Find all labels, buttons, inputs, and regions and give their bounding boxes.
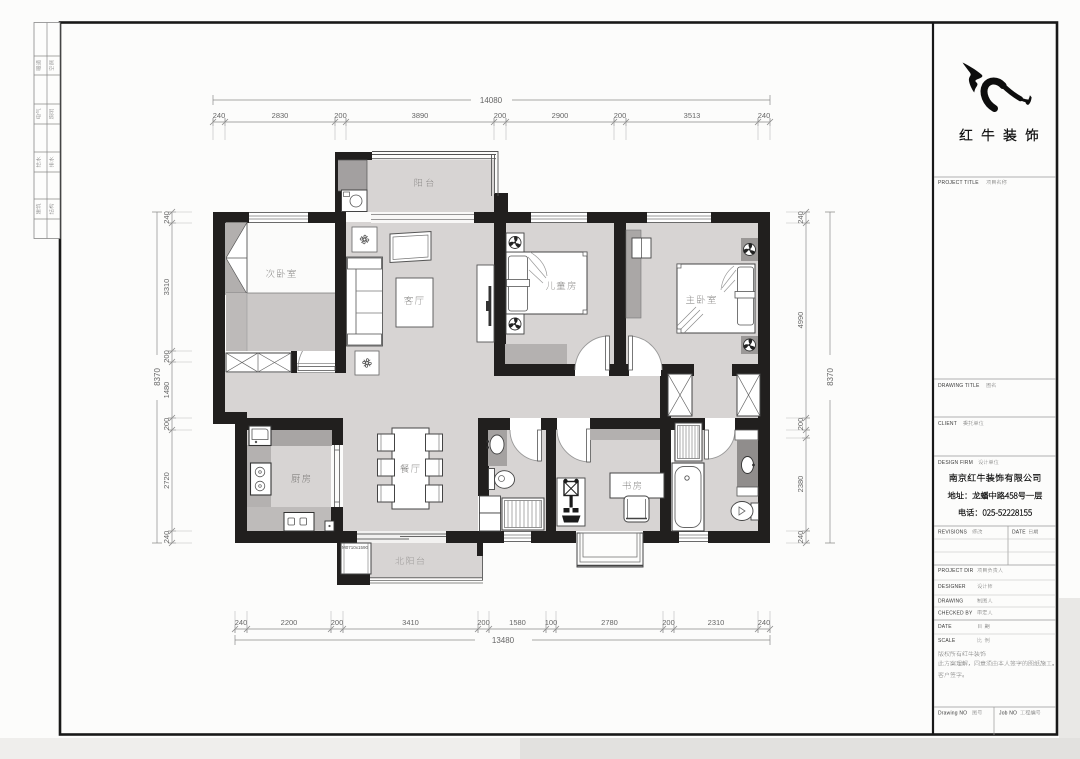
svg-text:SCALE: SCALE — [938, 638, 956, 644]
svg-text:200: 200 — [796, 418, 805, 431]
svg-text:2830: 2830 — [272, 111, 289, 120]
svg-text:Job NO: Job NO — [999, 711, 1017, 717]
svg-text:240: 240 — [796, 211, 805, 224]
svg-text:Drawing NO: Drawing NO — [938, 711, 967, 717]
svg-text:2200: 2200 — [281, 618, 298, 627]
svg-text:200: 200 — [614, 111, 627, 120]
svg-text:3310: 3310 — [162, 279, 171, 296]
svg-text:1480: 1480 — [162, 382, 171, 399]
svg-text:240: 240 — [162, 531, 171, 544]
svg-text:PROJECT DIR: PROJECT DIR — [938, 568, 974, 574]
svg-text:3890: 3890 — [412, 111, 429, 120]
svg-text:240: 240 — [758, 618, 771, 627]
svg-text:CHECKED BY: CHECKED BY — [938, 611, 973, 617]
svg-text:240: 240 — [796, 531, 805, 544]
svg-text:REVISIONS: REVISIONS — [938, 530, 967, 536]
svg-text:DATE: DATE — [1012, 530, 1026, 536]
svg-text:3513: 3513 — [684, 111, 701, 120]
svg-text:200: 200 — [334, 111, 347, 120]
svg-text:200: 200 — [162, 350, 171, 363]
svg-text:100: 100 — [545, 618, 558, 627]
svg-text:14080: 14080 — [480, 96, 503, 105]
svg-text:8370: 8370 — [153, 368, 162, 386]
svg-text:DRAWING TITLE: DRAWING TITLE — [938, 383, 980, 389]
svg-text:8370: 8370 — [826, 368, 835, 386]
svg-text:240: 240 — [235, 618, 248, 627]
svg-text:2720: 2720 — [162, 472, 171, 489]
svg-text:240: 240 — [213, 111, 226, 120]
svg-text:200: 200 — [162, 418, 171, 431]
svg-text:PROJECT TITLE: PROJECT TITLE — [938, 180, 979, 186]
svg-text:200: 200 — [494, 111, 507, 120]
svg-text:CLIENT: CLIENT — [938, 421, 957, 427]
svg-text:M0710x1590: M0710x1590 — [342, 545, 369, 550]
svg-text:DESIGNER: DESIGNER — [938, 584, 966, 590]
svg-text:DESIGN FIRM: DESIGN FIRM — [938, 460, 973, 466]
svg-text:1580: 1580 — [509, 618, 526, 627]
svg-text:2780: 2780 — [601, 618, 618, 627]
svg-text:3410: 3410 — [402, 618, 419, 627]
svg-text:240: 240 — [758, 111, 771, 120]
svg-text:2310: 2310 — [708, 618, 725, 627]
svg-text:2900: 2900 — [552, 111, 569, 120]
svg-text:DATE: DATE — [938, 624, 952, 630]
svg-text:200: 200 — [331, 618, 344, 627]
svg-text:4990: 4990 — [796, 312, 805, 329]
svg-text:13480: 13480 — [492, 636, 515, 645]
svg-text:200: 200 — [477, 618, 490, 627]
svg-text:2380: 2380 — [796, 476, 805, 493]
svg-text:200: 200 — [662, 618, 675, 627]
svg-text:240: 240 — [162, 211, 171, 224]
svg-text:DRAWING: DRAWING — [938, 599, 963, 605]
